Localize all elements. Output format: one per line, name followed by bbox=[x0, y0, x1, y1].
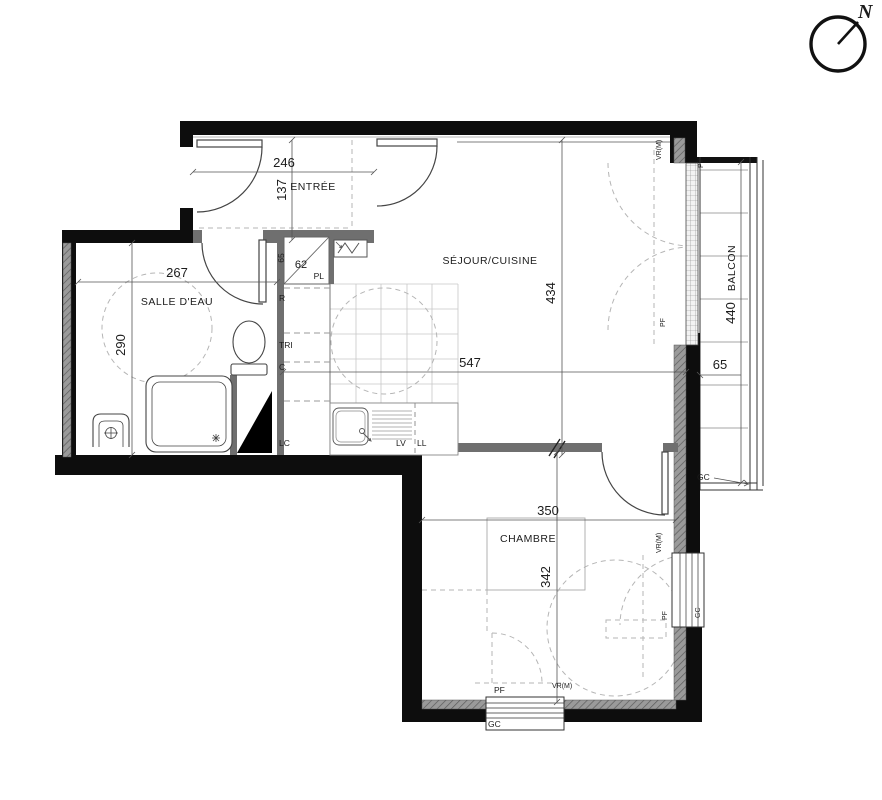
dim-entree-height: 137 bbox=[274, 179, 289, 201]
room-label-chambre: CHAMBRE bbox=[500, 533, 556, 545]
tag-vrm-sejour: VR(M) bbox=[656, 140, 663, 160]
bedroom-free-area bbox=[487, 518, 585, 590]
dim-balcon-depth: 65 bbox=[713, 357, 727, 372]
floorplan-page: ENTRÉE SALLE D'EAU SÉJOUR/CUISINE CHAMBR… bbox=[0, 0, 882, 800]
balcony-glazed-wall bbox=[686, 163, 698, 345]
tag-pf-sejour: PF bbox=[660, 318, 667, 327]
tag-gc-chambre-bottom: GC bbox=[488, 719, 501, 729]
toilet-tank bbox=[231, 364, 267, 375]
bedroom-zone-guides bbox=[422, 590, 487, 633]
closet-label: PL bbox=[314, 271, 325, 281]
turning-circle-kitchen bbox=[331, 288, 437, 394]
living-door-swing bbox=[377, 146, 437, 206]
tag-ll: LL bbox=[417, 438, 427, 448]
bedroom-window-swing bbox=[492, 633, 542, 683]
tag-vrm-chambre-right: VR(M) bbox=[656, 533, 663, 553]
floorplan-drawing: ENTRÉE SALLE D'EAU SÉJOUR/CUISINE CHAMBR… bbox=[0, 0, 882, 800]
technical-duct bbox=[237, 391, 272, 453]
tag-vrm-chambre-bottom: VR(M) bbox=[552, 683, 572, 690]
wall-bedroom-right-upper bbox=[686, 455, 700, 553]
balcony-bottom-rail bbox=[697, 483, 763, 490]
balcony-top-wall bbox=[697, 157, 757, 163]
electrical-panel bbox=[334, 240, 367, 257]
dim-sde-height: 290 bbox=[113, 334, 128, 356]
balcony-door-swing-2 bbox=[608, 247, 691, 330]
dim-chambre-width: 350 bbox=[537, 503, 559, 518]
dim-entree-width: 246 bbox=[273, 155, 295, 170]
room-label-entree: ENTRÉE bbox=[290, 180, 336, 193]
wall-entry-left-lower bbox=[180, 208, 193, 232]
tag-lc: LC bbox=[279, 438, 290, 448]
dim-closet-height: 65 bbox=[276, 253, 286, 263]
dim-balcon-length: 440 bbox=[723, 302, 738, 324]
compass-north-label: N bbox=[857, 1, 874, 23]
compass-needle bbox=[838, 22, 858, 44]
turning-circle-bathroom bbox=[102, 273, 212, 383]
tag-r: R bbox=[279, 293, 285, 303]
bedroom-door-leaf bbox=[662, 452, 668, 514]
turning-circle-bedroom bbox=[547, 560, 683, 696]
bathroom-door-swing bbox=[202, 243, 263, 304]
shower-drain bbox=[212, 434, 220, 442]
wall-top bbox=[180, 121, 697, 135]
radiator-zone bbox=[606, 620, 666, 638]
wall-entry-left-upper bbox=[180, 121, 193, 147]
partition-bedroom-door-jamb bbox=[663, 443, 678, 452]
wall-bathroom-top bbox=[62, 230, 193, 243]
kitchen-counter bbox=[330, 403, 458, 455]
north-compass: N bbox=[811, 1, 874, 71]
bathroom-door-leaf bbox=[259, 240, 266, 302]
dim-sejour-height: 434 bbox=[543, 282, 558, 304]
entrance-door-swing bbox=[197, 147, 262, 212]
tag-pf-chambre-right: PF bbox=[662, 611, 669, 620]
room-label-balcon: BALCON bbox=[726, 245, 738, 291]
wall-bottom-left bbox=[55, 455, 417, 475]
wall-right-mid bbox=[686, 333, 700, 457]
living-door-leaf bbox=[377, 139, 437, 146]
wall-bedroom-left bbox=[402, 455, 422, 717]
dim-chambre-height: 342 bbox=[538, 566, 553, 588]
dim-sde-width: 267 bbox=[166, 265, 188, 280]
kitchen-tile-grid bbox=[330, 284, 458, 403]
room-label-salle-deau: SALLE D'EAU bbox=[141, 296, 213, 308]
room-label-sejour-cuisine: SÉJOUR/CUISINE bbox=[442, 254, 537, 267]
tag-tri: TRI bbox=[279, 340, 293, 350]
tag-gc-balcon: GC bbox=[697, 472, 710, 482]
tag-lv: LV bbox=[396, 438, 406, 448]
dim-closet-width: 62 bbox=[295, 259, 307, 271]
tag-pf-chambre-bottom: PF bbox=[494, 685, 505, 695]
toilet-bowl bbox=[233, 321, 265, 363]
entrance-door-leaf bbox=[197, 140, 262, 147]
balcony-railing bbox=[750, 157, 763, 490]
balcony-door-swing-1 bbox=[608, 163, 691, 246]
kitchen-tap bbox=[360, 429, 365, 434]
dim-sejour-width: 547 bbox=[459, 355, 481, 370]
tag-c: C bbox=[279, 362, 285, 372]
tag-gc-chambre-right: GC bbox=[695, 608, 702, 619]
tag-pv: PV bbox=[698, 158, 705, 168]
wall-bedroom-right-lower bbox=[686, 627, 702, 722]
bedroom-door-swing bbox=[602, 452, 665, 515]
gc-arrow bbox=[714, 478, 748, 486]
